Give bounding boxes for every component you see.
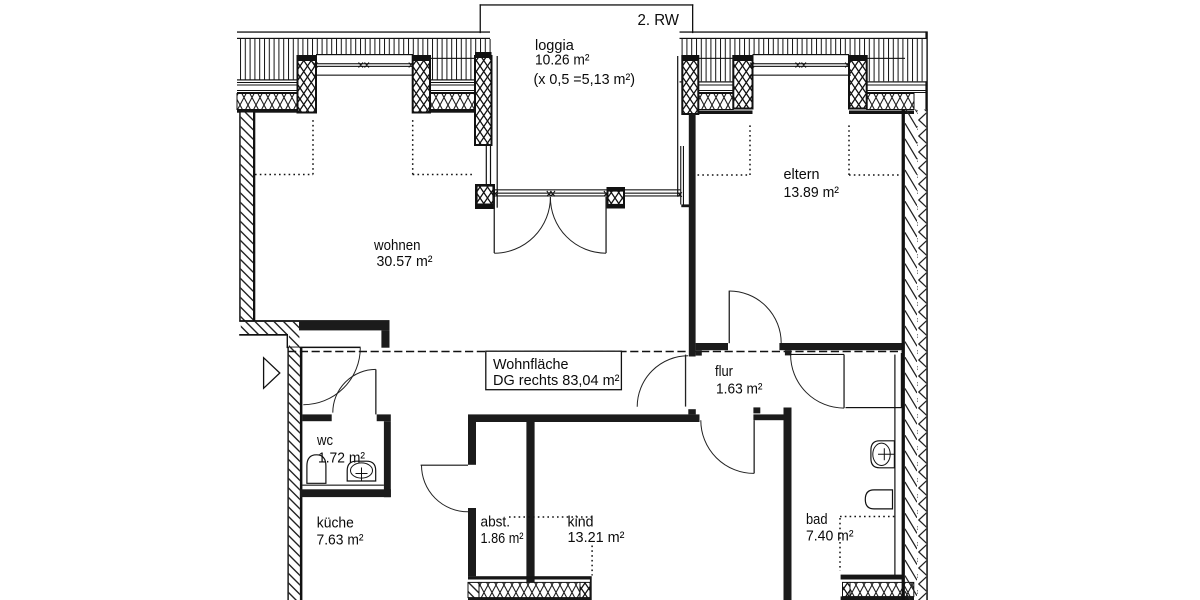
svg-text:1.86 m²: 1.86 m² [481,530,524,547]
svg-text:küche: küche [317,515,354,532]
svg-text:eltern: eltern [784,166,820,183]
svg-text:1.72 m²: 1.72 m² [318,450,365,467]
svg-text:wc: wc [316,432,333,449]
svg-text:flur: flur [715,363,733,380]
svg-text:13.21 m²: 13.21 m² [568,529,625,546]
svg-text:Wohnfläche: Wohnfläche [493,356,569,373]
svg-text:7.40 m²: 7.40 m² [806,528,854,545]
svg-text:abst.: abst. [481,514,511,531]
svg-text:DG rechts 83,04 m²: DG rechts 83,04 m² [493,372,620,389]
svg-text:30.57 m²: 30.57 m² [377,253,433,270]
svg-text:kind: kind [568,514,594,531]
svg-text:1.63 m²: 1.63 m² [716,381,763,398]
svg-text:(x 0,5 =5,13 m²): (x 0,5 =5,13 m²) [534,71,636,88]
svg-text:2. RW: 2. RW [638,12,680,29]
svg-text:wohnen: wohnen [373,237,420,254]
svg-text:13.89 m²: 13.89 m² [784,184,840,201]
svg-text:10.26 m²: 10.26 m² [535,52,590,69]
svg-text:bad: bad [806,511,828,528]
svg-text:7.63 m²: 7.63 m² [317,532,364,549]
